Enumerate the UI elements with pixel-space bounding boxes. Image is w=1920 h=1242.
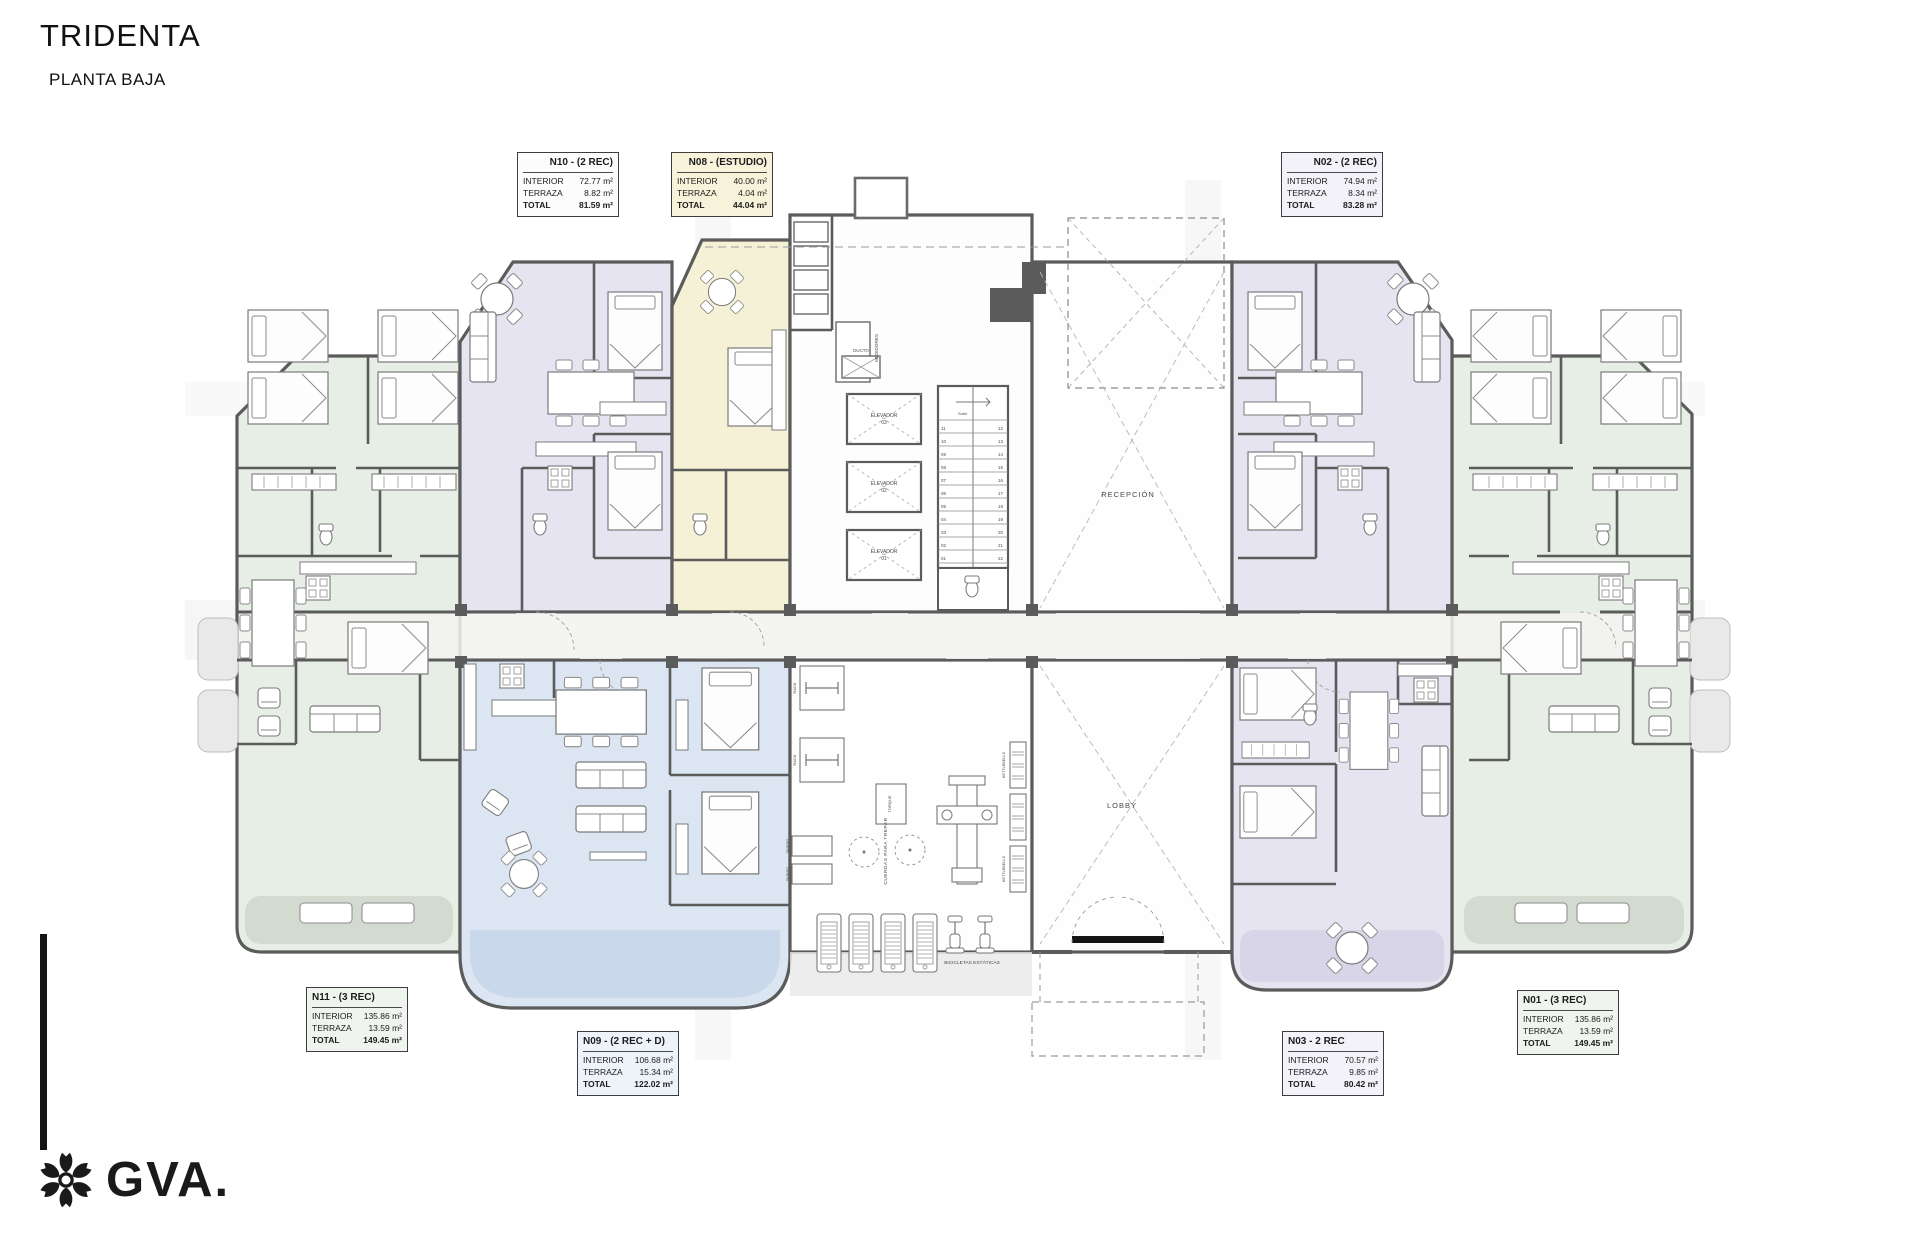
elevator-3-label: ELEVADOR <box>871 413 898 419</box>
lobby-label: LOBBY <box>1107 801 1137 810</box>
unit-info-box-n03: N03 - 2 REC INTERIOR70.57 m² TERRAZA9.85… <box>1282 1031 1384 1096</box>
row-label: INTERIOR <box>523 176 564 188</box>
rack-label: RACK <box>792 754 797 765</box>
row-label: TOTAL <box>1288 1079 1316 1091</box>
row-label: INTERIOR <box>583 1055 624 1067</box>
stair-step: 05 <box>941 504 947 509</box>
row-value: 135.86 m² <box>1575 1014 1613 1026</box>
row-label: INTERIOR <box>677 176 718 188</box>
unit-title: N08 - (ESTUDIO) <box>677 156 767 173</box>
gva-flower-icon <box>34 1148 98 1212</box>
unit-info-box-n10: N10 - (2 REC) INTERIOR72.77 m² TERRAZA8.… <box>517 152 619 217</box>
staircase: 11 10 09 08 07 06 05 04 03 02 01 12 13 1… <box>938 386 1008 610</box>
row-label: TOTAL <box>312 1035 340 1047</box>
row-value: 83.28 m² <box>1343 200 1377 212</box>
row-label: TERRAZA <box>583 1067 623 1079</box>
row-label: TERRAZA <box>1287 188 1327 200</box>
stair-step: 12 <box>998 426 1004 431</box>
unit-title: N11 - (3 REC) <box>312 991 402 1008</box>
row-label: INTERIOR <box>1287 176 1328 188</box>
brand-wordmark: GVA. <box>106 1152 230 1208</box>
stair-step: 16 <box>998 478 1004 483</box>
corridor <box>239 613 1690 659</box>
row-value: 13.59 m² <box>368 1023 402 1035</box>
row-value: 72.77 m² <box>579 176 613 188</box>
row-value: 40.00 m² <box>733 176 767 188</box>
row-value: 15.34 m² <box>639 1067 673 1079</box>
unit-info-box-n02: N02 - (2 REC) INTERIOR74.94 m² TERRAZA8.… <box>1281 152 1383 217</box>
row-value: 74.94 m² <box>1343 176 1377 188</box>
reception-region <box>1032 262 1232 612</box>
ducto-label: DUCTO <box>853 348 869 353</box>
row-label: TERRAZA <box>1523 1026 1563 1038</box>
row-value: 106.68 m² <box>635 1055 673 1067</box>
page-subtitle: PLANTA BAJA <box>49 70 166 90</box>
row-label: TERRAZA <box>312 1023 352 1035</box>
reception-label: RECEPCIÓN <box>1101 490 1155 499</box>
torque-label: TORQUE <box>887 795 892 812</box>
row-label: TOTAL <box>677 200 705 212</box>
skierg-label: SKIERG <box>786 839 790 853</box>
unit-info-box-n01: N01 - (3 REC) INTERIOR135.86 m² TERRAZA1… <box>1517 990 1619 1055</box>
stair-step: 06 <box>941 491 947 496</box>
kettlebells-label: KETTLEBELLS <box>1002 855 1006 882</box>
bicicletas-label: BICICLETAS ESTÁTICAS <box>944 959 1000 966</box>
floorplan-drawing: MEDIDORES DUCTO ELEVADOR 03 ELEVADOR 02 … <box>0 0 1920 1242</box>
row-label: TERRAZA <box>523 188 563 200</box>
cuerdas-label: CUERDAS PARA TREPAR <box>883 817 889 884</box>
stair-step: 07 <box>941 478 947 483</box>
unit-info-box-n09: N09 - (2 REC + D) INTERIOR106.68 m² TERR… <box>577 1031 679 1096</box>
elevators: ELEVADOR 03 ELEVADOR 02 ELEVADOR 01 <box>847 394 921 580</box>
stair-step: 19 <box>998 517 1004 522</box>
row-value: 149.45 m² <box>1574 1038 1613 1050</box>
medidores-label: MEDIDORES <box>874 334 879 362</box>
row-label: TOTAL <box>583 1079 611 1091</box>
stair-step: 13 <box>998 439 1004 444</box>
stair-step: 15 <box>998 465 1004 470</box>
stair-step: 17 <box>998 491 1004 496</box>
unit-info-box-n11: N11 - (3 REC) INTERIOR135.86 m² TERRAZA1… <box>306 987 408 1052</box>
stair-step: 14 <box>998 452 1004 457</box>
stair-step: 10 <box>941 439 947 444</box>
row-value: 44.04 m² <box>733 200 767 212</box>
row-label: TOTAL <box>1523 1038 1551 1050</box>
stairs-note: Sube <box>958 411 968 416</box>
page-title: TRIDENTA <box>40 18 201 54</box>
row-value: 4.04 m² <box>738 188 767 200</box>
row-value: 80.42 m² <box>1344 1079 1378 1091</box>
elevator-2-number: 02 <box>881 488 887 494</box>
stair-step: 09 <box>941 452 947 457</box>
stair-step: 08 <box>941 465 947 470</box>
elevator-1-label: ELEVADOR <box>871 549 898 555</box>
kettlebells-label: KETTLEBELLS <box>1002 751 1006 778</box>
stair-step: 01 <box>941 556 947 561</box>
row-value: 8.34 m² <box>1348 188 1377 200</box>
row-label: TOTAL <box>1287 200 1315 212</box>
unit-title: N10 - (2 REC) <box>523 156 613 173</box>
elevator-1-number: 01 <box>881 556 887 562</box>
stair-step: 22 <box>998 556 1004 561</box>
unit-title: N01 - (3 REC) <box>1523 994 1613 1011</box>
unit-title: N03 - 2 REC <box>1288 1035 1378 1052</box>
stair-step: 04 <box>941 517 947 522</box>
stair-step: 18 <box>998 504 1004 509</box>
row-label: INTERIOR <box>1523 1014 1564 1026</box>
row-value: 70.57 m² <box>1344 1055 1378 1067</box>
row-value: 149.45 m² <box>363 1035 402 1047</box>
row-value: 81.59 m² <box>579 200 613 212</box>
row-label: TOTAL <box>523 200 551 212</box>
skierg-label: SKIERG <box>786 867 790 881</box>
stair-step: 03 <box>941 530 947 535</box>
brand-logo: GVA. <box>34 1148 230 1212</box>
unit-info-box-n08: N08 - (ESTUDIO) INTERIOR40.00 m² TERRAZA… <box>671 152 773 217</box>
row-label: TERRAZA <box>677 188 717 200</box>
row-value: 8.82 m² <box>584 188 613 200</box>
row-value: 135.86 m² <box>364 1011 402 1023</box>
row-value: 122.02 m² <box>634 1079 673 1091</box>
elevator-2-label: ELEVADOR <box>871 481 898 487</box>
stair-step: 02 <box>941 543 947 548</box>
stair-step: 11 <box>941 426 946 431</box>
stair-step: 21 <box>998 543 1004 548</box>
stair-step: 20 <box>998 530 1004 535</box>
row-label: INTERIOR <box>312 1011 353 1023</box>
unit-title: N09 - (2 REC + D) <box>583 1035 673 1052</box>
row-label: TERRAZA <box>1288 1067 1328 1079</box>
row-value: 13.59 m² <box>1579 1026 1613 1038</box>
row-value: 9.85 m² <box>1349 1067 1378 1079</box>
rack-label: RACK <box>792 682 797 693</box>
sidebar-rule <box>40 934 47 1150</box>
unit-title: N02 - (2 REC) <box>1287 156 1377 173</box>
row-label: INTERIOR <box>1288 1055 1329 1067</box>
elevator-3-number: 03 <box>881 420 887 426</box>
